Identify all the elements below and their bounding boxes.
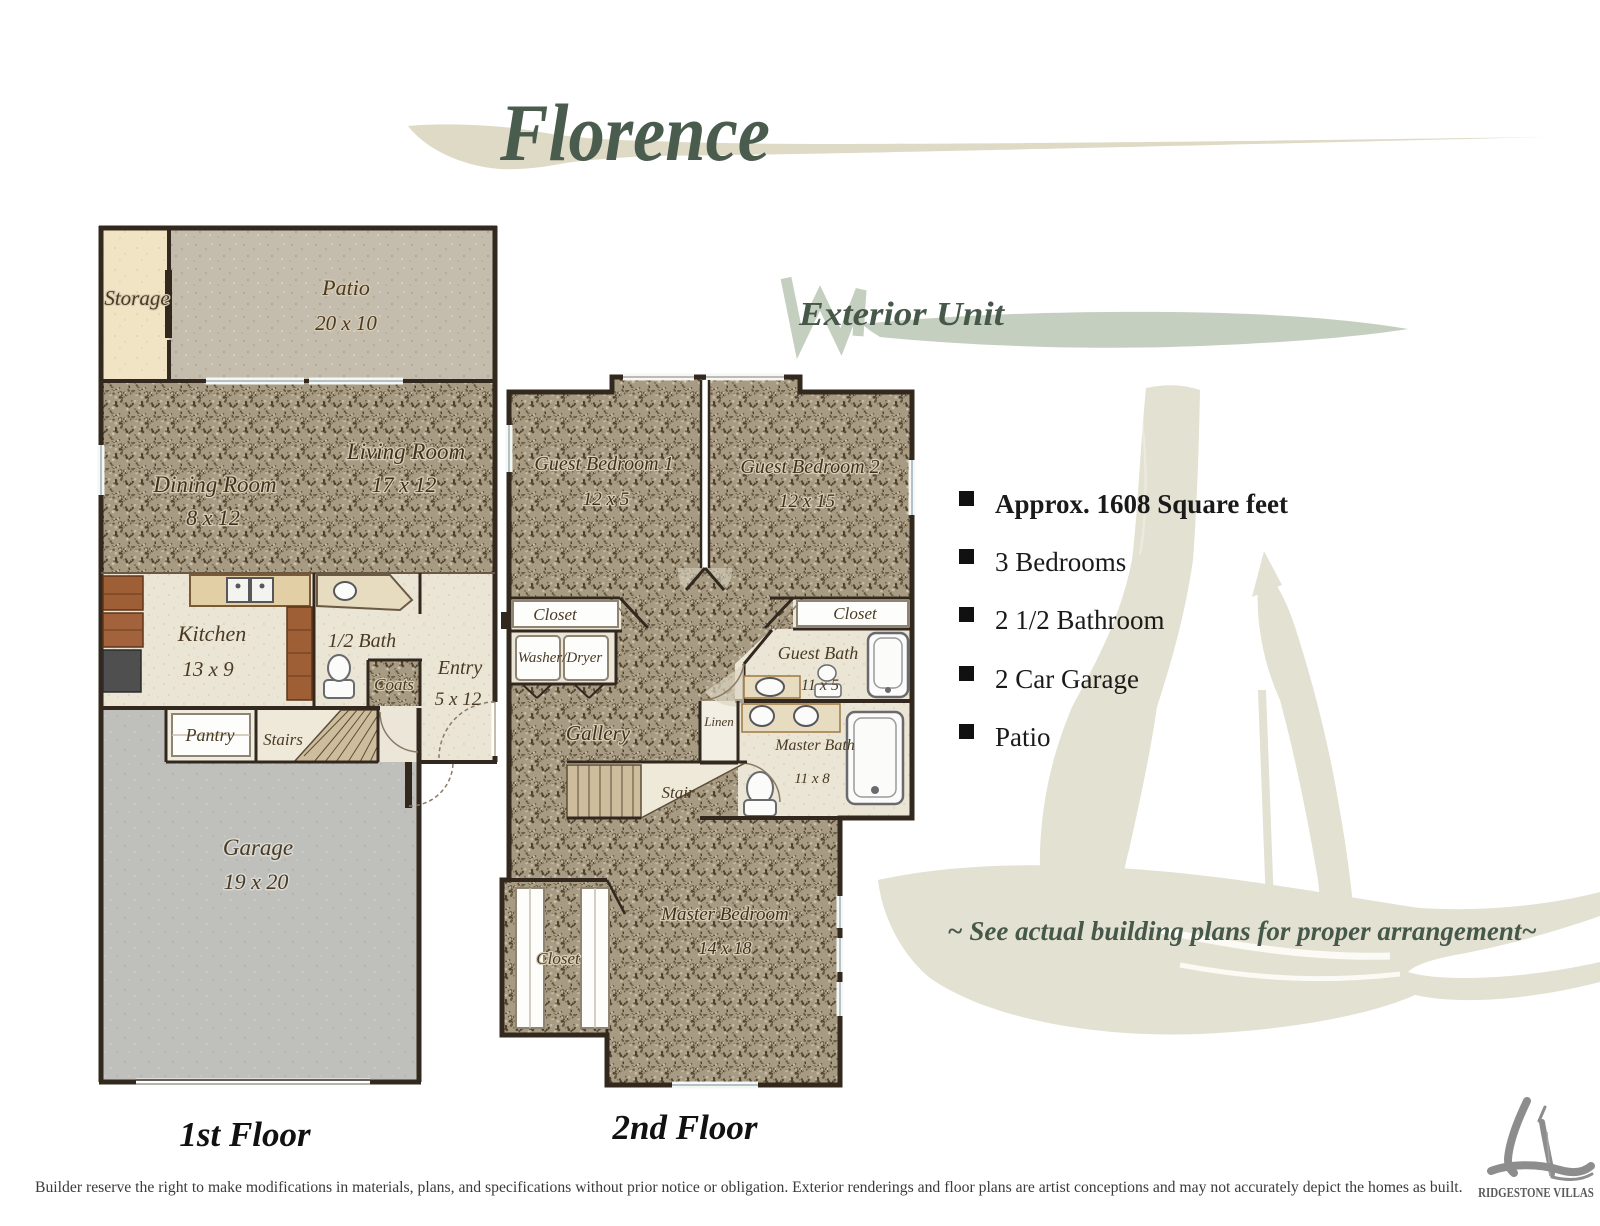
- svg-text:3 Bedrooms: 3 Bedrooms: [995, 547, 1126, 577]
- svg-text:Closet: Closet: [536, 949, 581, 968]
- svg-text:Storage: Storage: [104, 286, 169, 310]
- svg-text:Guest Bath: Guest Bath: [778, 643, 859, 663]
- svg-text:Patio: Patio: [995, 722, 1051, 752]
- svg-text:Dining Room: Dining Room: [152, 472, 276, 497]
- svg-text:Coats: Coats: [374, 675, 414, 694]
- svg-text:Pantry: Pantry: [185, 725, 235, 745]
- svg-text:2nd Floor: 2nd Floor: [612, 1108, 758, 1147]
- svg-text:11 x 8: 11 x 8: [794, 771, 830, 787]
- svg-text:Guest Bedroom 1: Guest Bedroom 1: [534, 453, 673, 475]
- svg-text:19 x 20: 19 x 20: [224, 869, 289, 894]
- svg-text:17 x 12: 17 x 12: [372, 472, 437, 497]
- svg-text:8 x 12: 8 x 12: [186, 505, 240, 530]
- svg-text:~ See actual building plans fo: ~ See actual building plans for proper a…: [947, 916, 1537, 946]
- svg-text:5 x 12: 5 x 12: [435, 689, 482, 710]
- svg-text:Entry: Entry: [437, 657, 483, 679]
- svg-text:Patio: Patio: [321, 275, 370, 300]
- svg-text:Builder reserve the right to m: Builder reserve the right to make modifi…: [35, 1179, 1463, 1196]
- svg-text:Kitchen: Kitchen: [177, 621, 246, 646]
- svg-text:Stair: Stair: [661, 783, 694, 802]
- svg-text:12 x 15: 12 x 15: [779, 491, 835, 512]
- svg-text:Gallery: Gallery: [566, 721, 631, 745]
- svg-text:2 1/2 Bathroom: 2 1/2 Bathroom: [995, 605, 1165, 635]
- svg-text:Linen: Linen: [703, 714, 734, 729]
- svg-text:Master Bath: Master Bath: [774, 737, 855, 754]
- svg-text:12 x 5: 12 x 5: [583, 489, 629, 510]
- svg-text:Living Room: Living Room: [346, 439, 465, 464]
- svg-text:20 x 10: 20 x 10: [315, 311, 377, 335]
- svg-text:Master Bedroom: Master Bedroom: [660, 904, 789, 925]
- svg-text:Closet: Closet: [533, 605, 578, 624]
- svg-text:14 x 18: 14 x 18: [699, 938, 752, 958]
- svg-text:13 x 9: 13 x 9: [182, 657, 234, 681]
- svg-text:Florence: Florence: [499, 87, 770, 178]
- svg-text:11 x 5: 11 x 5: [801, 677, 839, 694]
- svg-text:RIDGESTONE VILLAS: RIDGESTONE VILLAS: [1478, 1185, 1594, 1201]
- svg-text:Approx. 1608 Square feet: Approx. 1608 Square feet: [995, 489, 1288, 519]
- svg-text:Washer/Dryer: Washer/Dryer: [518, 650, 603, 666]
- svg-text:2 Car Garage: 2 Car Garage: [995, 664, 1139, 694]
- svg-text:Closet: Closet: [833, 604, 878, 623]
- svg-text:Garage: Garage: [223, 835, 293, 860]
- svg-text:Exterior Unit: Exterior Unit: [798, 296, 1006, 333]
- svg-text:1/2 Bath: 1/2 Bath: [328, 630, 396, 652]
- svg-text:Guest Bedroom 2: Guest Bedroom 2: [740, 456, 879, 478]
- svg-text:1st Floor: 1st Floor: [179, 1115, 311, 1154]
- svg-text:Stairs: Stairs: [263, 730, 303, 749]
